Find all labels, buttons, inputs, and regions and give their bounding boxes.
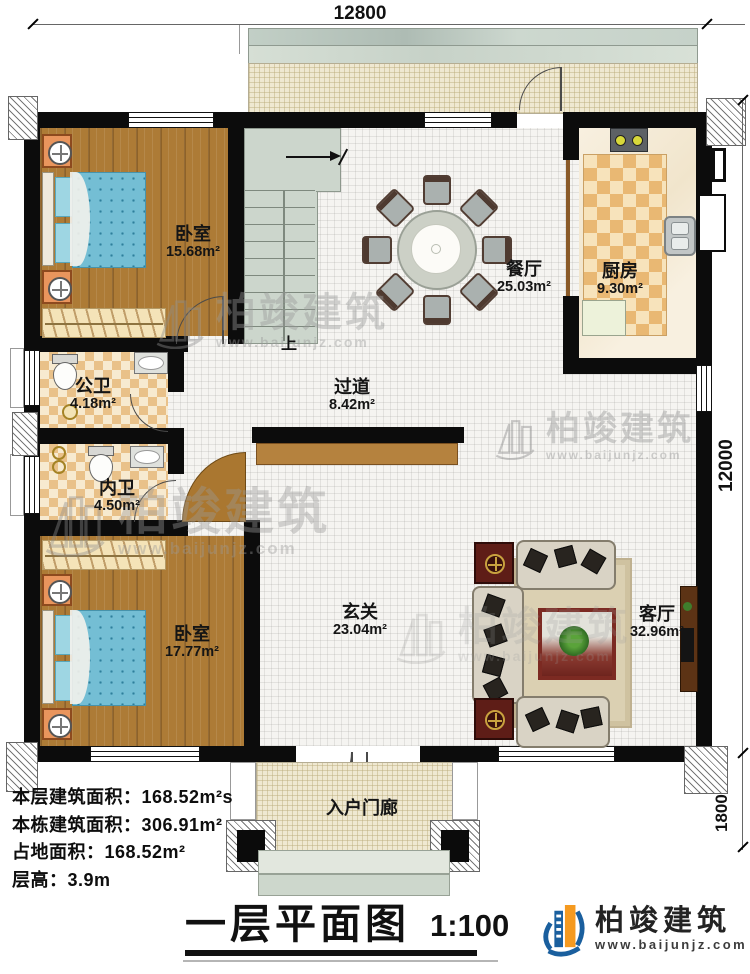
lamp-icon bbox=[48, 714, 72, 738]
nightstand-icon bbox=[42, 708, 72, 740]
plant-icon bbox=[559, 626, 589, 656]
info-line: 本栋建筑面积：306.91m² bbox=[12, 812, 233, 840]
side-table-icon bbox=[474, 698, 514, 740]
room-label-corridor: 过道 8.42m² bbox=[312, 377, 392, 414]
room-label-dining: 餐厅 25.03m² bbox=[484, 259, 564, 296]
wall bbox=[244, 520, 260, 746]
info-line: 占地面积：168.52m² bbox=[12, 839, 233, 867]
title-underline-thin bbox=[183, 960, 498, 962]
sink-icon bbox=[130, 446, 164, 468]
lamp-icon bbox=[48, 580, 72, 604]
window bbox=[424, 112, 492, 128]
bed-icon bbox=[42, 610, 144, 704]
chair-icon bbox=[423, 295, 451, 325]
room-label-bedroom-top: 卧室 15.68m² bbox=[148, 224, 238, 261]
room-label-bath-public: 公卫 4.18m² bbox=[56, 376, 130, 413]
dining-table-icon bbox=[397, 210, 477, 290]
column-pad bbox=[12, 412, 38, 456]
dim-top-label: 12800 bbox=[300, 3, 420, 25]
wardrobe-icon bbox=[42, 540, 166, 570]
porch-step bbox=[258, 850, 450, 874]
column-pad bbox=[706, 98, 746, 146]
room-label-living: 客厅 32.96m² bbox=[616, 604, 698, 641]
wall bbox=[563, 112, 579, 160]
stove-icon bbox=[610, 128, 648, 152]
wall bbox=[563, 112, 712, 128]
wall bbox=[40, 520, 188, 536]
terrace-roof-band-inner bbox=[248, 45, 698, 65]
staircase-rail bbox=[283, 190, 285, 341]
window bbox=[696, 365, 712, 412]
door-leaf bbox=[560, 67, 562, 111]
window bbox=[24, 456, 40, 514]
shower-valve-icon bbox=[52, 460, 66, 474]
wall bbox=[214, 112, 424, 128]
wall bbox=[24, 112, 40, 350]
side-table-icon bbox=[474, 542, 514, 584]
dim-tick bbox=[737, 841, 748, 852]
wall bbox=[420, 746, 498, 762]
dim-porch-line bbox=[742, 755, 743, 850]
company-website: www.baijunjz.com bbox=[595, 937, 747, 952]
porch-pilaster bbox=[230, 762, 256, 820]
floor-plan: 上 bbox=[0, 0, 750, 974]
dim-tick bbox=[737, 747, 748, 758]
sofa-icon bbox=[472, 586, 524, 704]
staircase-steps bbox=[245, 190, 315, 341]
wall bbox=[492, 112, 517, 128]
sink-icon bbox=[134, 352, 168, 374]
lamp-icon bbox=[48, 277, 72, 301]
window bbox=[128, 112, 214, 128]
terrace-edge-line bbox=[239, 24, 240, 54]
dim-porch-label: 1800 bbox=[712, 778, 732, 832]
room-label-porch: 入户门廊 bbox=[312, 798, 412, 818]
dim-right-line bbox=[742, 100, 743, 755]
kitchen-table-icon bbox=[582, 300, 626, 336]
chair-icon bbox=[423, 175, 451, 205]
wall bbox=[168, 352, 184, 392]
wall bbox=[200, 746, 296, 762]
wall bbox=[168, 444, 184, 474]
window-sill bbox=[10, 348, 24, 408]
room-label-foyer: 玄关 23.04m² bbox=[320, 602, 400, 639]
shower-valve-icon bbox=[52, 446, 66, 460]
title-block: 一层平面图 1:100 bbox=[185, 902, 509, 946]
sofa-icon bbox=[516, 540, 616, 590]
wall-niche bbox=[698, 194, 726, 252]
window bbox=[90, 746, 200, 762]
wall bbox=[30, 112, 128, 128]
wall bbox=[24, 514, 40, 762]
info-line: 本层建筑面积：168.52m²s bbox=[12, 784, 233, 812]
flue bbox=[712, 148, 726, 182]
room-label-bedroom-bottom: 卧室 17.77m² bbox=[147, 624, 237, 661]
dim-right-label: 12000 bbox=[716, 408, 738, 492]
company-logo-icon bbox=[540, 899, 586, 957]
room-label-bath-private: 内卫 4.50m² bbox=[77, 478, 157, 515]
plan-scale: 1:100 bbox=[430, 906, 509, 946]
window bbox=[24, 350, 40, 406]
door-leaf bbox=[222, 296, 224, 344]
window bbox=[498, 746, 615, 762]
hall-cabinet bbox=[256, 443, 458, 465]
title-underline-thick bbox=[185, 950, 477, 956]
wall bbox=[252, 427, 464, 443]
terrace-floor bbox=[248, 63, 698, 114]
wardrobe-icon bbox=[42, 308, 166, 338]
sofa-icon bbox=[516, 696, 610, 748]
nightstand-icon bbox=[42, 134, 72, 168]
kitchen-sink-icon bbox=[664, 216, 696, 256]
brand-block: 柏竣建筑 www.baijunjz.com bbox=[540, 899, 747, 957]
nightstand-icon bbox=[42, 270, 72, 304]
company-name: 柏竣建筑 bbox=[595, 905, 747, 937]
info-line: 层高：3.9m bbox=[12, 867, 233, 895]
window-sill bbox=[10, 454, 24, 516]
info-block: 本层建筑面积：168.52m²s 本栋建筑面积：306.91m² 占地面积：16… bbox=[12, 784, 233, 894]
plan-title: 一层平面图 bbox=[185, 902, 410, 946]
porch-pilaster bbox=[452, 762, 478, 820]
wall bbox=[40, 336, 188, 352]
nightstand-icon bbox=[42, 574, 72, 606]
bed-icon bbox=[42, 172, 144, 266]
wall bbox=[696, 412, 712, 762]
room-label-kitchen: 厨房 9.30m² bbox=[580, 261, 660, 298]
column-pad bbox=[8, 96, 38, 140]
wall bbox=[563, 358, 712, 374]
stairs-direction-line bbox=[286, 156, 332, 158]
chair-icon bbox=[362, 236, 392, 264]
porch-step bbox=[258, 874, 450, 896]
kitchen-sliding-door bbox=[566, 160, 570, 296]
coffee-table-icon bbox=[538, 608, 616, 680]
lamp-icon bbox=[48, 141, 72, 165]
stairs-up-label: 上 bbox=[281, 330, 297, 354]
